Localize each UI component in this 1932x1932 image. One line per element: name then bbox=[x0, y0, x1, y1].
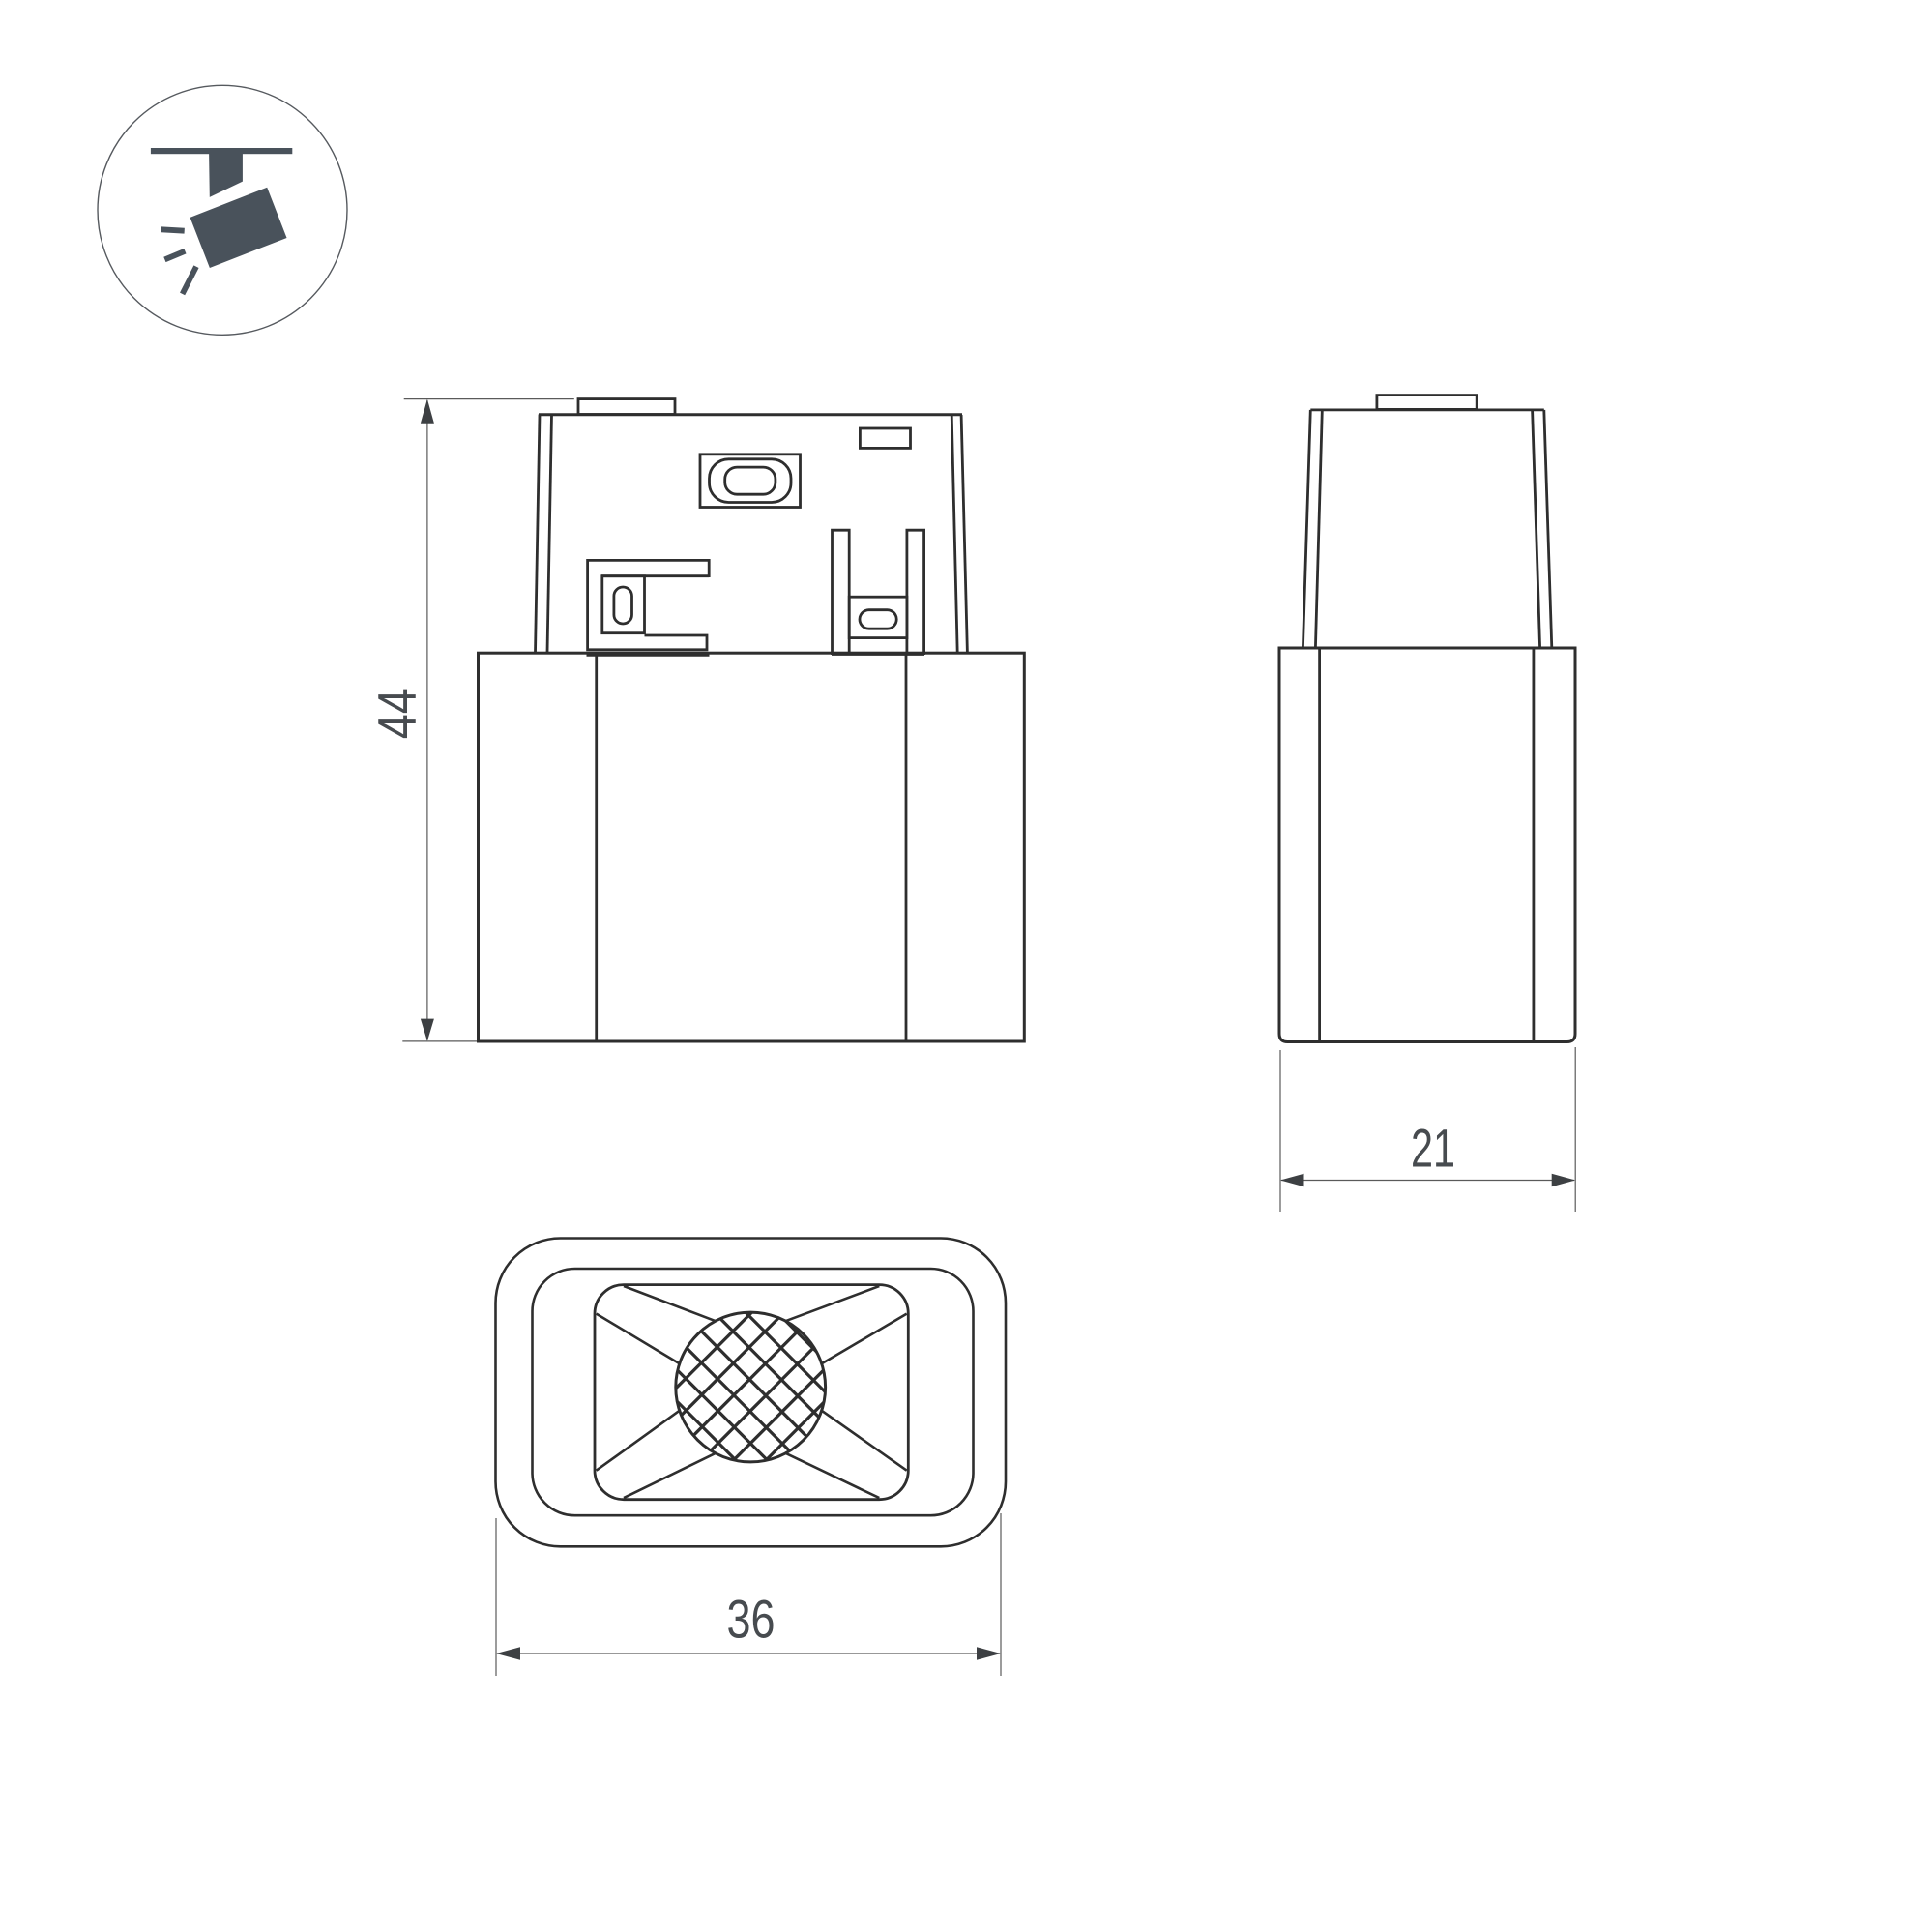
svg-text:36: 36 bbox=[727, 1589, 776, 1650]
svg-text:44: 44 bbox=[366, 688, 427, 739]
svg-text:21: 21 bbox=[1411, 1118, 1455, 1179]
